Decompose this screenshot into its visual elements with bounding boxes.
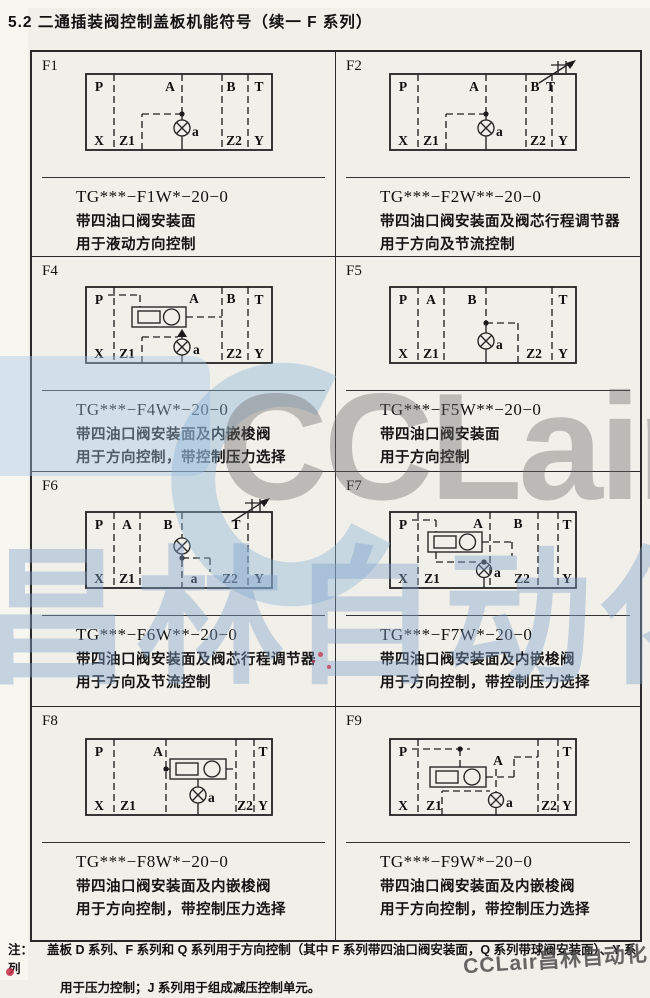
page-title: 5.2 二通插装阀控制盖板机能符号（续一 F 系列） <box>8 10 608 32</box>
gauge-port-icon <box>489 793 504 808</box>
port-label-X: X <box>398 133 408 148</box>
port-label-B: B <box>530 79 539 94</box>
description-line: 带四油口阀安装面及内嵌梭阀 <box>380 876 640 899</box>
description-line: 带四油口阀安装面及内嵌梭阀 <box>76 424 335 447</box>
description-line: 用于方向控制，带控制压力选择 <box>76 899 335 922</box>
cell-id-label: F6 <box>42 478 58 495</box>
footnote: 注：盖板 D 系列、F 系列和 Q 系列用于方向控制（其中 F 系列带四油口阀安… <box>8 941 644 998</box>
cell-divider-line <box>42 615 325 616</box>
gauge-port-icon <box>174 120 190 136</box>
hydraulic-schematic-F1: P A B T X Z1 Z2 Y a <box>68 60 300 172</box>
description-line: 带四油口阀安装面及阀芯行程调节器 <box>76 649 335 672</box>
cell-F7: F7 P A B T X Z1 Z2 Y a <box>336 472 640 707</box>
model-code: TG***−F7W*−20−0 <box>380 625 640 645</box>
port-label-Z2: Z2 <box>526 346 542 361</box>
cell-F1: F1 P A B T X Z1 Z2 Y a TG***−F1W*−20−0 带… <box>32 52 336 257</box>
port-label-Y: Y <box>562 798 572 813</box>
description-line: 带四油口阀安装面 <box>76 211 335 234</box>
stroke-adjuster-icon <box>539 60 576 83</box>
cell-F5: F5 P A B T X Z1 Z2 Y a TG***−F5W**−20−0 … <box>336 257 640 472</box>
footnote-line-2: 用于压力控制；J 系列用于组成减压控制单元。 <box>60 979 644 998</box>
description-line: 用于方向控制，带控制压力选择 <box>380 899 640 922</box>
port-label-T: T <box>254 292 263 307</box>
footnote-line-1: 注：盖板 D 系列、F 系列和 Q 系列用于方向控制（其中 F 系列带四油口阀安… <box>8 941 644 979</box>
hydraulic-schematic-F5: P A B T X Z1 Z2 Y a <box>372 273 604 385</box>
description-line: 用于方向及节流控制 <box>76 672 335 695</box>
port-label-Z1: Z1 <box>119 133 135 148</box>
gauge-port-icon <box>190 787 206 803</box>
cell-id-label: F7 <box>346 478 362 495</box>
port-label-X: X <box>94 133 104 148</box>
port-label-Y: Y <box>558 346 568 361</box>
gauge-port-icon <box>477 563 492 578</box>
port-label-Z1: Z1 <box>423 346 439 361</box>
port-label-P: P <box>399 517 407 532</box>
description-line: 用于方向控制 <box>380 447 640 470</box>
port-label-T: T <box>546 79 555 94</box>
red-ink-speck <box>312 660 315 663</box>
model-code: TG***−F1W*−20−0 <box>76 187 335 207</box>
red-ink-speck <box>327 665 331 669</box>
cell-id-label: F5 <box>346 263 362 280</box>
cell-divider-line <box>346 615 630 616</box>
port-label-A: A <box>189 291 199 306</box>
shuttle-valve-icon <box>428 532 482 552</box>
port-label-X: X <box>94 798 104 813</box>
shuttle-valve-icon <box>430 767 486 787</box>
port-label-Y: Y <box>258 798 268 813</box>
port-label-a: a <box>496 337 503 352</box>
port-label-P: P <box>94 292 102 307</box>
port-label-A: A <box>165 79 175 94</box>
hydraulic-schematic-F4: P A B T X Z1 Z2 Y a <box>68 273 300 385</box>
cell-F9: F9 P A T X Z1 Z2 Y a TG** <box>336 707 640 940</box>
port-label-A: A <box>473 516 483 531</box>
port-label-P: P <box>399 292 407 307</box>
port-label-Y: Y <box>254 133 264 148</box>
port-label-Y: Y <box>254 346 264 361</box>
hydraulic-schematic-F9: P A T X Z1 Z2 Y a <box>372 725 604 837</box>
port-label-Y: Y <box>562 571 572 586</box>
port-label-Z2: Z2 <box>226 133 242 148</box>
cell-id-label: F4 <box>42 263 58 280</box>
port-label-T: T <box>558 292 567 307</box>
footnote-label: 注： <box>8 943 33 957</box>
cell-id-label: F1 <box>42 58 58 75</box>
port-label-B: B <box>513 516 522 531</box>
scan-margin-top <box>0 0 650 8</box>
description-line: 用于方向控制，带控制压力选择 <box>380 672 640 695</box>
cell-id-label: F2 <box>346 58 362 75</box>
port-label-T: T <box>231 517 240 532</box>
port-label-X: X <box>94 571 104 586</box>
port-label-A: A <box>153 744 163 759</box>
port-label-a: a <box>190 571 197 586</box>
cell-divider-line <box>346 390 630 391</box>
cell-id-label: F9 <box>346 713 362 730</box>
port-label-X: X <box>398 346 408 361</box>
cell-divider-line <box>346 177 630 178</box>
port-label-Z1: Z1 <box>119 346 135 361</box>
port-label-a: a <box>506 795 513 810</box>
port-label-Z1: Z1 <box>120 798 136 813</box>
model-code: TG***−F5W**−20−0 <box>380 400 640 420</box>
gauge-port-icon <box>174 538 190 554</box>
port-label-Z1: Z1 <box>423 133 439 148</box>
description-line: 用于方向控制，带控制压力选择 <box>76 447 335 470</box>
port-label-Y: Y <box>558 133 568 148</box>
red-ink-speck <box>6 968 14 976</box>
port-label-A: A <box>493 753 503 768</box>
port-label-a: a <box>192 124 199 139</box>
cell-F2: F2 P A B T X Z1 Z2 Y a <box>336 52 640 257</box>
port-label-Z1: Z1 <box>424 571 440 586</box>
model-code: TG***−F6W**−20−0 <box>76 625 335 645</box>
port-label-T: T <box>254 79 263 94</box>
port-label-Z2: Z2 <box>541 798 557 813</box>
port-label-P: P <box>94 744 102 759</box>
port-label-X: X <box>398 798 408 813</box>
port-label-B: B <box>226 79 235 94</box>
scan-margin <box>0 0 28 980</box>
port-label-T: T <box>258 744 267 759</box>
model-code: TG***−F4W*−20−0 <box>76 400 335 420</box>
port-label-Y: Y <box>254 571 264 586</box>
cell-divider-line <box>346 842 630 843</box>
model-code: TG***−F8W*−20−0 <box>76 852 335 872</box>
port-label-Z1: Z1 <box>426 798 442 813</box>
cell-F6: F6 P A B T X Z1 a Z2 Y <box>32 472 336 707</box>
hydraulic-schematic-F8: P A T X Z1 Z2 Y a <box>68 725 300 837</box>
cell-divider-line <box>42 842 325 843</box>
shuttle-valve-icon <box>132 307 186 327</box>
description-line: 用于液动方向控制 <box>76 234 335 257</box>
port-label-Z2: Z2 <box>514 571 530 586</box>
cell-divider-line <box>42 390 325 391</box>
model-code: TG***−F9W*−20−0 <box>380 852 640 872</box>
port-label-Z2: Z2 <box>237 798 253 813</box>
description-line: 带四油口阀安装面及内嵌梭阀 <box>380 649 640 672</box>
gauge-port-icon <box>478 333 494 349</box>
port-label-P: P <box>399 744 407 759</box>
port-label-P: P <box>94 79 102 94</box>
port-label-Z2: Z2 <box>530 133 546 148</box>
cell-divider-line <box>42 177 325 178</box>
cell-F4: F4 P A B T X Z1 Z2 Y a <box>32 257 336 472</box>
port-label-A: A <box>469 79 479 94</box>
description-line: 带四油口阀安装面 <box>380 424 640 447</box>
port-label-a: a <box>494 565 501 580</box>
port-label-T: T <box>562 744 571 759</box>
port-label-B: B <box>163 517 172 532</box>
symbol-table: F1 P A B T X Z1 Z2 Y a TG***−F1W*−20−0 带… <box>30 50 642 942</box>
gauge-port-icon <box>174 339 190 355</box>
model-code: TG***−F2W**−20−0 <box>380 187 640 207</box>
port-label-A: A <box>122 517 132 532</box>
hydraulic-schematic-F2: P A B T X Z1 Z2 Y a <box>372 60 604 172</box>
description-line: 用于方向及节流控制 <box>380 234 640 257</box>
port-label-a: a <box>193 342 200 357</box>
red-ink-speck <box>318 652 323 657</box>
port-label-T: T <box>562 517 571 532</box>
port-label-a: a <box>208 790 215 805</box>
port-label-P: P <box>399 79 407 94</box>
port-label-X: X <box>398 571 408 586</box>
cell-id-label: F8 <box>42 713 58 730</box>
port-label-a: a <box>496 124 503 139</box>
hydraulic-schematic-F6: P A B T X Z1 a Z2 Y <box>68 498 300 610</box>
port-label-B: B <box>467 292 476 307</box>
port-label-Z1: Z1 <box>119 571 135 586</box>
description-line: 带四油口阀安装面及阀芯行程调节器 <box>380 211 640 234</box>
port-label-A: A <box>426 292 436 307</box>
port-label-X: X <box>94 346 104 361</box>
description-line: 带四油口阀安装面及内嵌梭阀 <box>76 876 335 899</box>
port-label-B: B <box>226 291 235 306</box>
shuttle-valve-icon <box>170 759 226 779</box>
cell-F8: F8 P A T X Z1 Z2 Y a TG** <box>32 707 336 940</box>
port-label-Z2: Z2 <box>226 346 242 361</box>
port-label-P: P <box>94 517 102 532</box>
hydraulic-schematic-F7: P A B T X Z1 Z2 Y a <box>372 498 604 610</box>
gauge-port-icon <box>478 120 494 136</box>
port-label-Z2: Z2 <box>222 571 238 586</box>
